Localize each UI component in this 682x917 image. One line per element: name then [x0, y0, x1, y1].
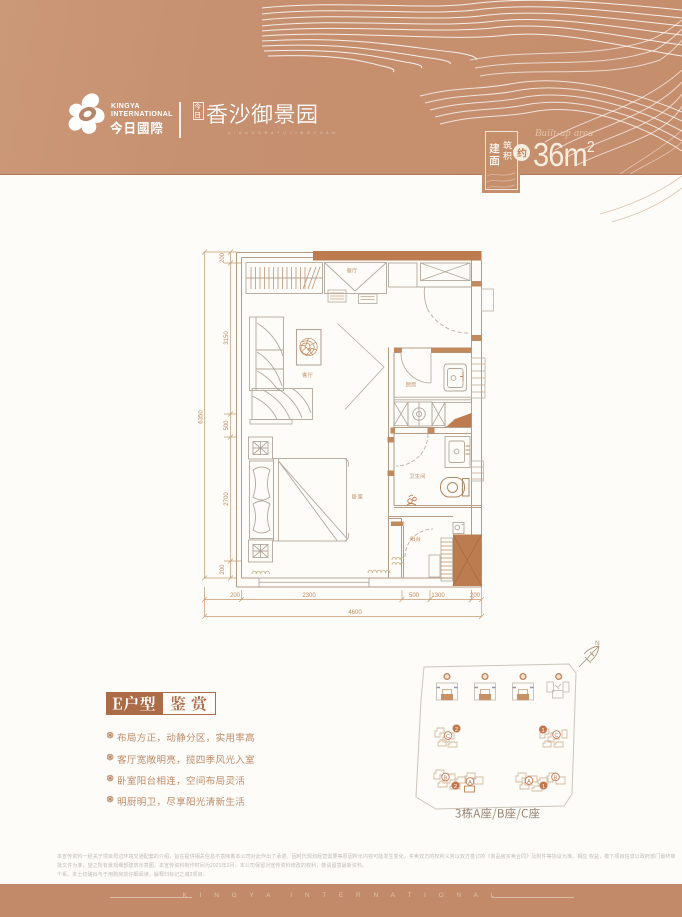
- svg-text:200: 200: [470, 593, 481, 599]
- svg-text:2: 2: [454, 784, 457, 790]
- svg-text:500: 500: [409, 593, 420, 599]
- svg-text:4600: 4600: [348, 610, 362, 616]
- svg-text:6350: 6350: [199, 410, 205, 424]
- svg-text:3150: 3150: [224, 331, 230, 345]
- svg-text:1: 1: [541, 728, 544, 734]
- svg-text:200: 200: [220, 252, 226, 263]
- svg-text:2: 2: [455, 727, 458, 733]
- svg-text:A: A: [468, 780, 472, 786]
- svg-text:C: C: [446, 734, 450, 740]
- svg-text:200: 200: [220, 564, 226, 575]
- svg-text:A: A: [527, 779, 531, 785]
- svg-text:2300: 2300: [302, 593, 316, 599]
- svg-text:2700: 2700: [224, 492, 230, 506]
- svg-text:1300: 1300: [431, 593, 445, 599]
- svg-text:N: N: [595, 640, 600, 647]
- svg-text:B: B: [444, 776, 448, 782]
- svg-text:200: 200: [230, 593, 241, 599]
- svg-text:C: C: [555, 733, 559, 739]
- svg-text:500: 500: [224, 420, 230, 431]
- svg-text:1: 1: [542, 784, 545, 790]
- svg-text:B: B: [554, 776, 558, 782]
